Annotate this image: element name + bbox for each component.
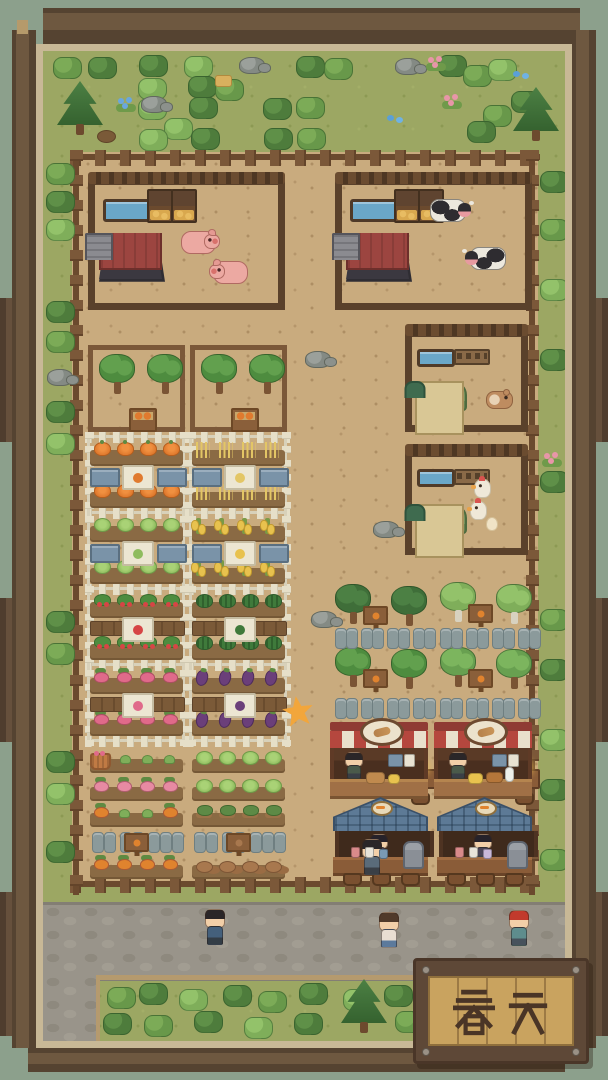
crop-radish bbox=[163, 670, 176, 683]
bush bbox=[46, 301, 75, 323]
bush bbox=[46, 751, 75, 773]
plot-cabbage bbox=[88, 518, 185, 584]
crop-cabbage bbox=[196, 751, 213, 765]
water-jug bbox=[507, 841, 528, 869]
bush bbox=[540, 349, 565, 371]
bush bbox=[164, 118, 193, 140]
bush bbox=[46, 163, 75, 185]
crop-watermelon bbox=[196, 636, 213, 650]
rock bbox=[47, 369, 73, 386]
crop-watermelon bbox=[242, 594, 259, 608]
bush bbox=[296, 97, 325, 119]
pig[interactable] bbox=[181, 231, 216, 254]
game-screen: 春天 bbox=[0, 0, 608, 1080]
egg[interactable] bbox=[486, 517, 498, 531]
bush bbox=[264, 128, 293, 150]
stone-bench bbox=[372, 628, 384, 649]
stone-bench bbox=[529, 698, 541, 719]
vendor[interactable] bbox=[344, 752, 362, 778]
butterfly-icon bbox=[387, 115, 394, 121]
bush bbox=[184, 56, 213, 78]
grove-sign bbox=[468, 604, 493, 623]
pine-tree bbox=[513, 87, 559, 141]
crop-wheat bbox=[196, 442, 210, 458]
bar-stall[interactable] bbox=[333, 797, 428, 882]
pig[interactable] bbox=[213, 261, 248, 284]
apple-tree bbox=[147, 354, 183, 394]
irrigation-panel bbox=[259, 468, 289, 487]
mulch-bed bbox=[172, 832, 184, 853]
bush bbox=[46, 401, 75, 423]
irrigation-panel bbox=[90, 544, 120, 563]
crop-turnip_orange bbox=[163, 805, 176, 818]
water-trough[interactable] bbox=[350, 199, 400, 222]
bush bbox=[540, 779, 565, 801]
rock bbox=[305, 351, 331, 368]
grove-tree bbox=[496, 584, 532, 624]
crop-potato bbox=[219, 861, 236, 873]
stool[interactable] bbox=[505, 873, 524, 886]
hay-bundle bbox=[215, 75, 232, 87]
coop-door[interactable] bbox=[405, 504, 426, 521]
crop-wheat bbox=[265, 442, 279, 458]
crop-wheat bbox=[219, 442, 233, 458]
bush bbox=[324, 58, 353, 80]
flowers bbox=[442, 95, 462, 109]
bush bbox=[299, 983, 328, 1005]
bush bbox=[188, 76, 217, 98]
field-row-sprouts bbox=[88, 751, 185, 775]
chicken-pen bbox=[405, 450, 528, 555]
crop-cabbage bbox=[140, 518, 157, 532]
farm-map bbox=[43, 51, 565, 1041]
crop-radish bbox=[140, 670, 153, 683]
rock bbox=[373, 521, 399, 538]
bush bbox=[223, 985, 252, 1007]
crop-sprout bbox=[142, 755, 153, 764]
bakery-stall[interactable] bbox=[330, 722, 428, 796]
villager[interactable] bbox=[203, 909, 225, 951]
crop-carrot bbox=[163, 857, 176, 870]
irrigation-panel bbox=[192, 544, 222, 563]
stone-path-branch bbox=[43, 975, 100, 1041]
bakery-stall[interactable] bbox=[434, 722, 532, 796]
plot-sign-corn bbox=[224, 541, 256, 566]
food-item bbox=[468, 773, 483, 784]
bush bbox=[540, 659, 565, 681]
rock bbox=[239, 57, 265, 74]
crop-potato bbox=[242, 861, 259, 873]
crop-cabbage bbox=[265, 751, 282, 765]
grove-tree bbox=[496, 649, 532, 689]
water-jug bbox=[403, 841, 424, 869]
stone-bench bbox=[503, 698, 515, 719]
orchard-plot bbox=[88, 345, 185, 432]
crop-cabbage bbox=[219, 779, 236, 793]
stool[interactable] bbox=[447, 873, 466, 886]
field-row-beds bbox=[88, 831, 185, 855]
crop-corn bbox=[242, 518, 247, 534]
crop-strawberry bbox=[140, 594, 157, 606]
grove-sign bbox=[363, 669, 388, 688]
cow-pen bbox=[335, 178, 532, 310]
irrigation-panel bbox=[157, 544, 187, 563]
food-item bbox=[388, 774, 400, 784]
bush bbox=[144, 1015, 173, 1037]
coop[interactable] bbox=[415, 504, 467, 558]
plot-watermelon bbox=[190, 594, 287, 660]
mulch-bed bbox=[194, 832, 206, 853]
mulch-bed bbox=[250, 832, 262, 853]
hamster-pen bbox=[405, 330, 528, 432]
crop-carrot bbox=[140, 857, 153, 870]
glyph-spring-chun bbox=[453, 985, 495, 1037]
bush bbox=[46, 643, 75, 665]
bush bbox=[297, 128, 326, 150]
season-sign-board: 春天 bbox=[413, 958, 589, 1064]
roof-dish-sign-icon bbox=[475, 801, 497, 816]
barn[interactable] bbox=[346, 233, 412, 317]
chicken[interactable] bbox=[470, 501, 487, 520]
bush bbox=[540, 471, 565, 493]
crop-corn bbox=[196, 518, 201, 534]
feed-bin[interactable] bbox=[394, 189, 420, 223]
orchard-plot bbox=[190, 345, 287, 432]
food-item bbox=[366, 772, 385, 784]
crop-potato-plant bbox=[265, 805, 281, 818]
stone-bench bbox=[451, 628, 463, 649]
bush bbox=[88, 57, 117, 79]
crop-strawberry bbox=[163, 636, 180, 648]
crop-pumpkin bbox=[117, 442, 134, 456]
stool[interactable] bbox=[401, 873, 420, 886]
crop-watermelon bbox=[265, 636, 282, 650]
crop-cabbage bbox=[219, 751, 236, 765]
mulch-bed bbox=[160, 832, 172, 853]
bush bbox=[540, 219, 565, 241]
grove-sign bbox=[468, 669, 493, 688]
stone-bench bbox=[398, 698, 410, 719]
bush bbox=[46, 191, 75, 213]
crop-cabbage bbox=[196, 779, 213, 793]
stone-bench bbox=[398, 628, 410, 649]
crop-potato bbox=[265, 861, 282, 873]
crop-watermelon bbox=[196, 594, 213, 608]
crop-pumpkin bbox=[140, 442, 157, 456]
crop-turnip_orange bbox=[94, 805, 107, 818]
picket-fence bbox=[187, 736, 290, 747]
mulch-bed bbox=[274, 832, 286, 853]
crop-pumpkin bbox=[163, 442, 180, 456]
glyph-sky-tian bbox=[507, 985, 549, 1037]
crop-potato-plant bbox=[196, 805, 212, 818]
irrigation-panel bbox=[157, 468, 187, 487]
bush bbox=[46, 783, 75, 805]
mulch-bed bbox=[148, 832, 160, 853]
bush bbox=[191, 128, 220, 150]
crop-corn bbox=[219, 518, 224, 534]
stone-bench bbox=[346, 698, 358, 719]
plot-sign-wheat bbox=[224, 465, 256, 490]
plot-pumpkin bbox=[88, 442, 185, 508]
food-item bbox=[486, 772, 503, 783]
crop-cabbage bbox=[117, 518, 134, 532]
crop-corn bbox=[265, 518, 270, 534]
mulch-bed bbox=[104, 832, 116, 853]
produce-crate[interactable] bbox=[231, 408, 259, 432]
crop-strawberry bbox=[163, 594, 180, 606]
barn-door[interactable] bbox=[332, 233, 360, 260]
irrigation-panel bbox=[259, 544, 289, 563]
harvest-basket[interactable] bbox=[90, 753, 111, 770]
plot-sign-pumpkin bbox=[122, 465, 154, 490]
rock bbox=[141, 96, 167, 113]
bush bbox=[46, 433, 75, 455]
water-trough[interactable] bbox=[417, 349, 455, 367]
cow[interactable] bbox=[430, 199, 466, 222]
plot-strawberry bbox=[88, 594, 185, 660]
food-item bbox=[505, 767, 514, 782]
villager[interactable] bbox=[507, 910, 529, 952]
coop-door[interactable] bbox=[405, 381, 426, 398]
cup bbox=[379, 849, 388, 859]
feed-bin[interactable] bbox=[147, 189, 173, 223]
screw-icon bbox=[572, 966, 580, 974]
mulch-bed bbox=[262, 832, 274, 853]
crop-cabbage bbox=[163, 518, 180, 532]
stone-bench bbox=[372, 698, 384, 719]
crop-cabbage bbox=[242, 779, 259, 793]
stone-bench bbox=[424, 628, 436, 649]
bush bbox=[540, 609, 565, 631]
feed-bin[interactable] bbox=[454, 349, 490, 365]
picket-fence bbox=[85, 736, 188, 747]
bush bbox=[540, 849, 565, 871]
irrigation-panel bbox=[90, 468, 120, 487]
shelf-box bbox=[404, 754, 415, 767]
stone-bench bbox=[477, 698, 489, 719]
plot-sign-eggplant bbox=[224, 693, 256, 718]
bush bbox=[179, 989, 208, 1011]
crop-turnip_pink bbox=[163, 779, 176, 792]
pine-tree bbox=[57, 81, 103, 135]
crop-turnip_pink bbox=[94, 779, 107, 792]
feed-bin[interactable] bbox=[171, 189, 197, 223]
cup bbox=[483, 849, 492, 859]
bush bbox=[46, 841, 75, 863]
plot-eggplant bbox=[190, 670, 287, 736]
field-row-cabbage bbox=[190, 779, 287, 803]
mulch-bed bbox=[92, 832, 104, 853]
grove-tree bbox=[391, 649, 427, 689]
field-sign bbox=[226, 833, 251, 852]
stone-bench bbox=[477, 628, 489, 649]
irrigation-panel bbox=[192, 468, 222, 487]
barn[interactable] bbox=[99, 233, 165, 317]
crop-radish bbox=[94, 670, 107, 683]
shelf-box bbox=[508, 754, 519, 767]
screw-icon bbox=[422, 966, 430, 974]
crop-cabbage bbox=[94, 518, 111, 532]
vendor[interactable] bbox=[448, 752, 466, 778]
bush bbox=[194, 1011, 223, 1033]
crop-strawberry bbox=[117, 594, 134, 606]
bush bbox=[488, 59, 517, 81]
hamster[interactable] bbox=[486, 391, 513, 409]
bush bbox=[540, 171, 565, 193]
rock bbox=[311, 611, 337, 628]
crop-sprout bbox=[119, 809, 130, 818]
bush bbox=[384, 985, 413, 1007]
crop-sprout bbox=[164, 755, 175, 764]
roof-dish-sign-icon bbox=[371, 801, 393, 816]
crop-pumpkin bbox=[94, 442, 111, 456]
flowers bbox=[426, 57, 446, 71]
bush bbox=[139, 129, 168, 151]
cup bbox=[469, 847, 478, 858]
season-sign-text: 春天 bbox=[501, 1011, 502, 1012]
tree-stump bbox=[97, 130, 116, 143]
apple-tree bbox=[249, 354, 285, 394]
produce-crate[interactable] bbox=[129, 408, 157, 432]
cow[interactable] bbox=[470, 247, 506, 270]
bush bbox=[540, 279, 565, 301]
cup bbox=[365, 847, 374, 858]
crop-turnip_pink bbox=[117, 779, 130, 792]
bush bbox=[263, 98, 292, 120]
grove-tree bbox=[391, 586, 427, 626]
shelf-box bbox=[492, 754, 507, 767]
crop-watermelon bbox=[265, 594, 282, 608]
farm-fence bbox=[70, 150, 83, 895]
farm-fence bbox=[70, 150, 540, 166]
crop-strawberry bbox=[94, 636, 111, 648]
plot-sign-radish bbox=[122, 693, 154, 718]
rock bbox=[395, 58, 421, 75]
crop-strawberry bbox=[94, 594, 111, 606]
crop-potato-plant bbox=[219, 805, 235, 818]
water-trough[interactable] bbox=[103, 199, 153, 222]
frame-right bbox=[572, 30, 596, 1048]
bush bbox=[258, 991, 287, 1013]
bush bbox=[540, 729, 565, 751]
crop-carrot bbox=[94, 857, 107, 870]
stone-bench bbox=[451, 698, 463, 719]
bush bbox=[107, 987, 136, 1009]
bread-sign-icon bbox=[464, 718, 508, 746]
crop-potato bbox=[196, 861, 213, 873]
water-trough[interactable] bbox=[417, 469, 455, 487]
bush bbox=[103, 1013, 132, 1035]
flowers bbox=[542, 453, 562, 467]
shelf-box bbox=[388, 754, 403, 767]
plot-radish bbox=[88, 670, 185, 736]
pig-pen bbox=[88, 178, 285, 310]
crop-watermelon bbox=[219, 594, 236, 608]
field-row-turnip_orange_mixed bbox=[88, 805, 185, 829]
bush bbox=[294, 1013, 323, 1035]
crop-sprout bbox=[120, 755, 131, 764]
plot-sign-strawberry bbox=[122, 617, 154, 642]
coop[interactable] bbox=[415, 381, 467, 435]
bush bbox=[244, 1017, 273, 1039]
bush bbox=[139, 983, 168, 1005]
field-row-cabbage bbox=[190, 751, 287, 775]
pine-tree bbox=[341, 979, 387, 1033]
stone-bench bbox=[503, 628, 515, 649]
field-row-potato_pile bbox=[190, 857, 287, 881]
field-row-carrot bbox=[88, 857, 185, 881]
crop-sprout bbox=[142, 809, 153, 818]
barn-door[interactable] bbox=[85, 233, 113, 260]
bush bbox=[467, 121, 496, 143]
crop-radish bbox=[117, 670, 130, 683]
plot-wheat bbox=[190, 442, 287, 508]
stone-bench bbox=[346, 628, 358, 649]
mulch-bed bbox=[206, 832, 218, 853]
plot-sign-cabbage bbox=[122, 541, 154, 566]
field-sign bbox=[124, 833, 149, 852]
bread-sign-icon bbox=[360, 718, 404, 746]
apple-tree bbox=[99, 354, 135, 394]
bush bbox=[46, 611, 75, 633]
crop-wheat bbox=[242, 442, 256, 458]
butterfly-icon bbox=[513, 71, 520, 77]
screw-icon bbox=[572, 1048, 580, 1056]
crop-cabbage bbox=[265, 779, 282, 793]
frame-left bbox=[12, 30, 36, 1048]
crop-radish bbox=[94, 712, 107, 725]
season-sign-panel: 春天 bbox=[428, 976, 574, 1046]
stall-counter[interactable] bbox=[434, 779, 532, 799]
crop-cabbage bbox=[242, 751, 259, 765]
flowers bbox=[116, 98, 136, 112]
crop-potato-plant bbox=[242, 805, 258, 818]
frame-top bbox=[43, 8, 580, 44]
bush bbox=[46, 331, 75, 353]
crop-turnip_pink bbox=[140, 779, 153, 792]
bush bbox=[46, 219, 75, 241]
stool[interactable] bbox=[476, 873, 495, 886]
bush bbox=[139, 55, 168, 77]
screw-icon bbox=[422, 1048, 430, 1056]
apple-tree bbox=[201, 354, 237, 394]
bush bbox=[189, 97, 218, 119]
plot-corn bbox=[190, 518, 287, 584]
customer[interactable] bbox=[360, 839, 382, 881]
field-row-beds bbox=[190, 831, 287, 855]
crop-radish bbox=[163, 712, 176, 725]
stone-bench bbox=[424, 698, 436, 719]
chicken[interactable] bbox=[474, 479, 491, 498]
stone-bench bbox=[529, 628, 541, 649]
crop-carrot bbox=[117, 857, 130, 870]
cup bbox=[455, 847, 464, 858]
frame-corner-notch bbox=[17, 20, 28, 34]
bush bbox=[296, 56, 325, 78]
grove-sign bbox=[363, 606, 388, 625]
plot-sign-watermelon bbox=[224, 617, 256, 642]
villager[interactable] bbox=[377, 912, 399, 954]
field-row-potato_plant bbox=[190, 805, 287, 829]
field-row-turnip_pink bbox=[88, 779, 185, 803]
cup bbox=[351, 847, 360, 858]
bar-stall[interactable] bbox=[437, 797, 532, 882]
bush bbox=[53, 57, 82, 79]
